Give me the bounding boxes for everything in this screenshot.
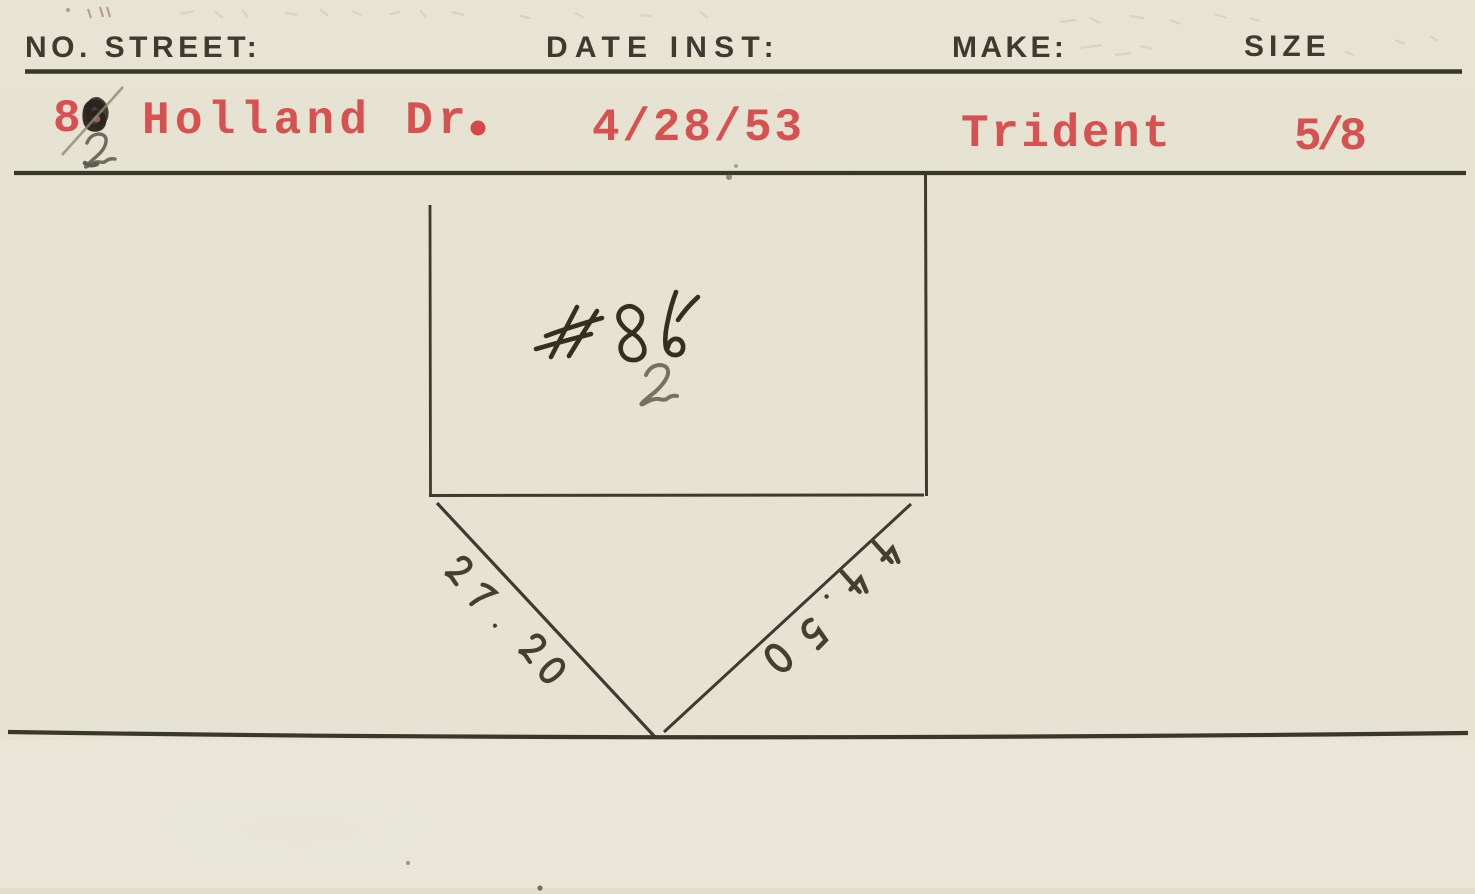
svg-text:4/28/53: 4/28/53 [592,102,805,154]
svg-text:DATE INST:: DATE INST: [546,31,781,64]
svg-text:Holland Dr: Holland Dr [142,95,471,147]
svg-text:MAKE:: MAKE: [952,31,1067,64]
svg-text:NO. STREET:: NO. STREET: [25,31,261,64]
svg-text:Trident: Trident [961,108,1172,160]
svg-text:SIZE: SIZE [1244,30,1331,63]
svg-text:5/8: 5/8 [1294,111,1365,163]
